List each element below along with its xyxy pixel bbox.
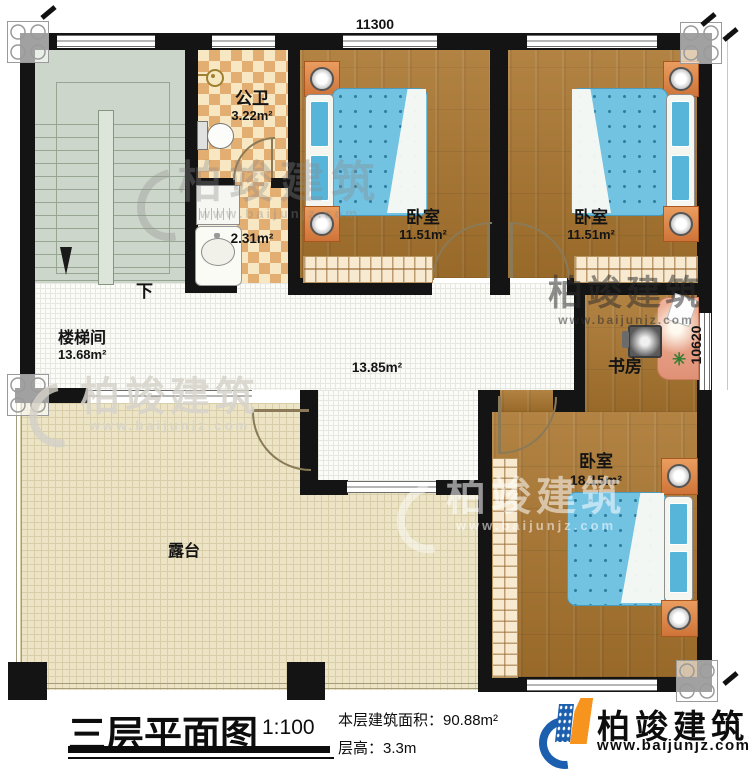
- wall-door-stub-center: [490, 278, 510, 295]
- title-underline-thick: [68, 746, 330, 753]
- title-underline-thin: [68, 757, 334, 759]
- shower-arm-line: [198, 74, 207, 76]
- pillow-icon: [310, 101, 329, 147]
- terrace-parapet-bottom-inner: [16, 683, 479, 684]
- bedroom1-nightstand-bottom: [304, 206, 340, 242]
- terrace-door-leaf: [252, 409, 309, 412]
- label-stairwell: 楼梯间 13.68m²: [58, 330, 106, 363]
- bathroom-door-leaf: [271, 138, 273, 178]
- corner-ornament-bottom-right: [676, 660, 718, 702]
- monitor-icon: [628, 325, 662, 358]
- stair-down-arrow: [60, 247, 72, 275]
- bedroom1-wardrobe: [303, 256, 433, 283]
- wall-bedroom3-north-left: [478, 390, 500, 412]
- bedroom2-door-leaf: [510, 222, 513, 278]
- bedroom3-door-leaf: [498, 396, 501, 454]
- pillow-icon: [671, 155, 690, 201]
- lamp-icon: [669, 212, 693, 236]
- label-bedroom2: 卧室 11.51m²: [553, 208, 629, 242]
- label-study: 书房: [608, 357, 642, 377]
- label-hall-area: 13.85m²: [346, 360, 408, 376]
- room-area: 11.51m²: [385, 228, 461, 243]
- corner-tick: [722, 27, 738, 42]
- bedroom3-nightstand-top: [661, 458, 698, 495]
- wall-alcove-south-right: [436, 480, 478, 495]
- corner-tick: [40, 5, 56, 20]
- bedroom3-wardrobe: [492, 458, 518, 678]
- floor-plan: ✳ 11300 10620 公卫 3.22m² 2.31m² 卧室 11.51m…: [0, 0, 750, 766]
- brand-site: www.baijunjz.com: [597, 737, 750, 754]
- label-bedroom1: 卧室 11.51m²: [385, 208, 461, 242]
- window-bedroom1-top: [343, 35, 437, 48]
- room-area: 2.31m²: [214, 231, 290, 247]
- label-bath-ante-area: 2.31m²: [214, 231, 290, 247]
- terrace-parapet-left-inner: [21, 403, 22, 690]
- room-area: 13.85m²: [346, 360, 408, 376]
- plant-icon: ✳: [672, 350, 686, 370]
- hall-alcove-floor: [318, 390, 478, 481]
- lamp-icon: [310, 67, 334, 91]
- lamp-icon: [667, 464, 691, 488]
- plan-scale: 1:100: [262, 716, 315, 740]
- wall-bath-bedroom1: [288, 50, 300, 295]
- terrace-column-left: [8, 662, 47, 700]
- room-name: 楼梯间: [58, 330, 106, 348]
- window-alcove-south: [347, 481, 436, 493]
- room-area: 18.15m²: [555, 472, 637, 488]
- room-area: 3.22m²: [214, 109, 290, 124]
- bedroom3-bed-headboard: [664, 496, 693, 602]
- window-stairwell-top: [57, 35, 155, 48]
- window-hall-terrace: [88, 390, 252, 401]
- lamp-icon: [669, 67, 693, 91]
- terrace-column-mid: [287, 662, 325, 700]
- bedroom2-nightstand-bottom: [663, 206, 699, 242]
- pillow-icon: [671, 101, 690, 147]
- wall-bedroom1-bedroom2: [490, 50, 508, 283]
- room-name: 卧室: [555, 452, 637, 472]
- shower-head-icon: [206, 69, 224, 87]
- corner-ornament-mid-left: [7, 374, 49, 416]
- pillow-icon: [310, 155, 329, 201]
- corner-ornament-top-left: [7, 21, 49, 63]
- floor-area-line: 本层建筑面积：90.88m²: [338, 709, 498, 730]
- room-name: 公卫: [214, 89, 290, 109]
- room-area: 13.68m²: [58, 348, 106, 363]
- corner-tick: [722, 671, 738, 686]
- washer-grill: [199, 208, 235, 220]
- floor-height-line: 层高：3.3m: [338, 737, 416, 758]
- lamp-icon: [667, 606, 691, 630]
- bedroom2-wardrobe: [574, 256, 698, 283]
- label-terrace: 露台: [168, 543, 200, 561]
- lamp-icon: [310, 212, 334, 236]
- bedroom1-door-leaf: [487, 222, 490, 278]
- window-bedroom3-south: [527, 679, 657, 691]
- bedroom2-bed-headboard: [666, 94, 695, 210]
- bedroom1-bed-headboard: [305, 94, 334, 210]
- pillow-icon: [669, 551, 688, 593]
- wall-left: [20, 33, 35, 390]
- wall-alcove-south-left: [315, 480, 348, 495]
- toilet-bowl-icon: [207, 123, 234, 149]
- wall-bedroom3-north-right: [553, 390, 585, 412]
- wall-bedroom3-west: [478, 412, 492, 677]
- brand-logo-icon: [539, 697, 595, 759]
- stair-rail: [98, 110, 114, 285]
- monitor-stand: [622, 331, 629, 348]
- exterior-guide-line: [727, 33, 728, 390]
- label-down: 下: [136, 282, 153, 302]
- wall-study-west: [574, 295, 585, 390]
- dimension-top: 11300: [330, 16, 420, 32]
- terrace-parapet-bottom-outer: [16, 688, 479, 689]
- bedroom2-nightstand-top: [663, 61, 699, 97]
- room-name: 卧室: [385, 208, 461, 228]
- window-bedroom2-top: [527, 35, 657, 48]
- hall-floor: [35, 283, 574, 390]
- room-area: 11.51m²: [553, 228, 629, 243]
- shower-head-dot: [211, 74, 215, 78]
- corner-ornament-top-right: [680, 22, 722, 64]
- label-bathroom: 公卫 3.22m²: [214, 89, 290, 123]
- label-bedroom3: 卧室 18.15m²: [555, 452, 637, 488]
- terrace-parapet-left-outer: [16, 403, 17, 690]
- dimension-right: 10620: [688, 305, 704, 385]
- window-bathroom-top: [212, 35, 275, 48]
- bedroom3-nightstand-bottom: [661, 600, 698, 637]
- pillow-icon: [669, 503, 688, 545]
- room-name: 卧室: [553, 208, 629, 228]
